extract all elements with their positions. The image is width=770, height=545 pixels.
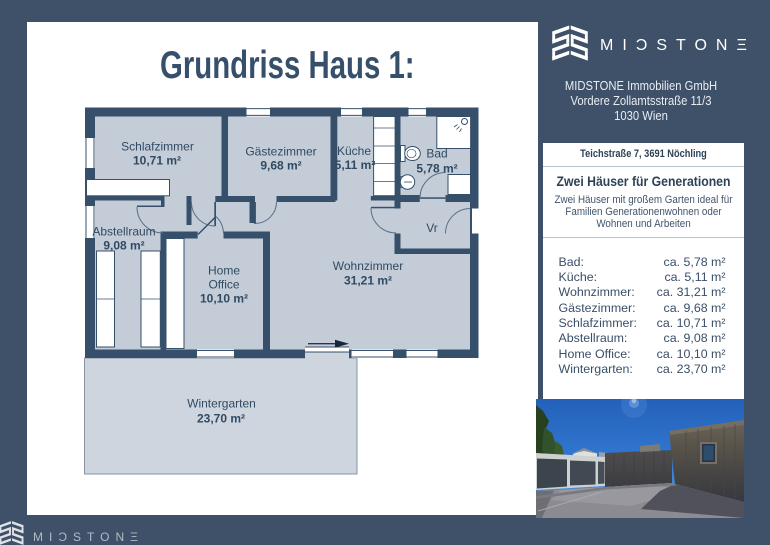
- svg-text:10,71 m²: 10,71 m²: [133, 154, 181, 168]
- svg-text:Bad: Bad: [426, 147, 447, 161]
- svg-text:Office: Office: [208, 278, 239, 292]
- svg-text:31,21 m²: 31,21 m²: [344, 274, 392, 288]
- svg-text:5,78 m²: 5,78 m²: [416, 162, 457, 176]
- svg-text:Wohnzimmer: Wohnzimmer: [333, 259, 403, 273]
- svg-text:9,08 m²: 9,08 m²: [103, 239, 144, 253]
- svg-text:5,11 m²: 5,11 m²: [335, 158, 376, 172]
- svg-text:Abstellraum: Abstellraum: [92, 225, 155, 239]
- svg-text:Vr: Vr: [426, 221, 438, 235]
- svg-text:9,68 m²: 9,68 m²: [260, 159, 301, 173]
- svg-text:23,70 m²: 23,70 m²: [197, 412, 245, 426]
- svg-text:10,10 m²: 10,10 m²: [200, 292, 248, 306]
- svg-text:Schlafzimmer: Schlafzimmer: [121, 140, 194, 154]
- svg-text:Home: Home: [208, 264, 240, 278]
- svg-text:Küche: Küche: [337, 144, 371, 158]
- svg-text:Gästezimmer: Gästezimmer: [245, 145, 316, 159]
- svg-text:Wintergarten: Wintergarten: [187, 397, 256, 411]
